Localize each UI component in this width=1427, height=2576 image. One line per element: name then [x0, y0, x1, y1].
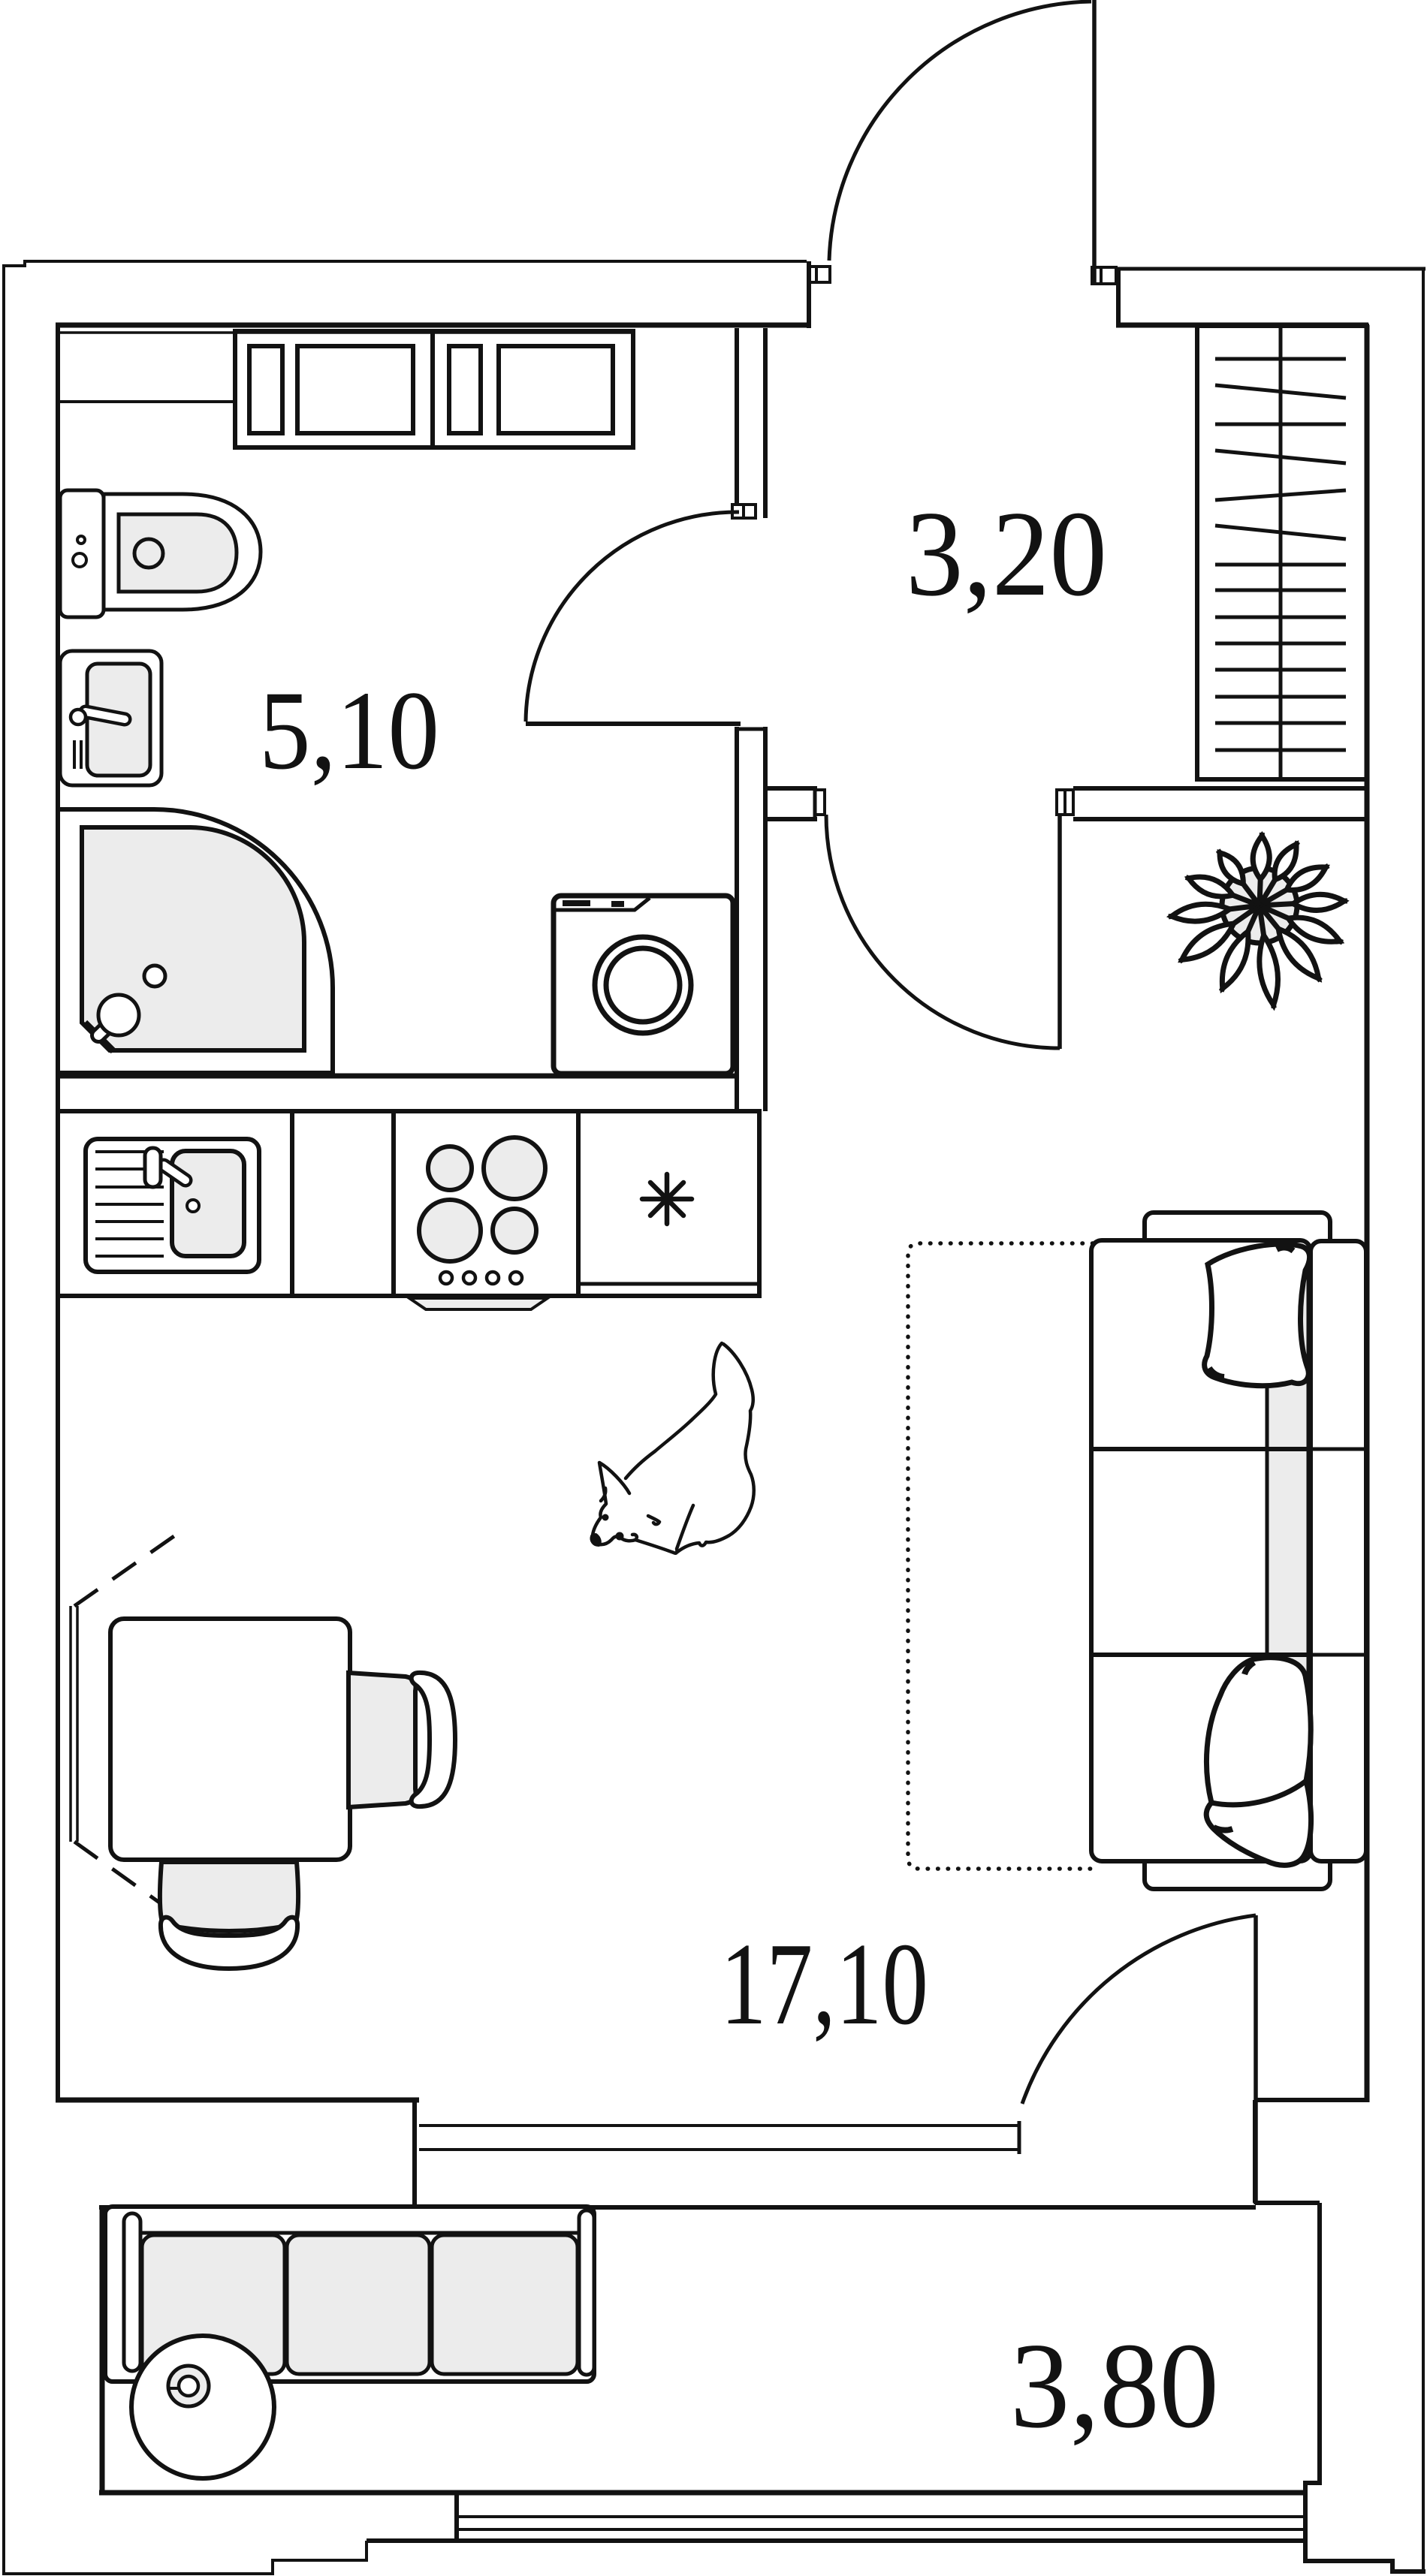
svg-text:3,80: 3,80 — [1010, 2318, 1219, 2454]
svg-text:3,20: 3,20 — [906, 487, 1107, 622]
svg-text:17,10: 17,10 — [720, 1918, 928, 2049]
svg-text:5,10: 5,10 — [259, 668, 439, 793]
